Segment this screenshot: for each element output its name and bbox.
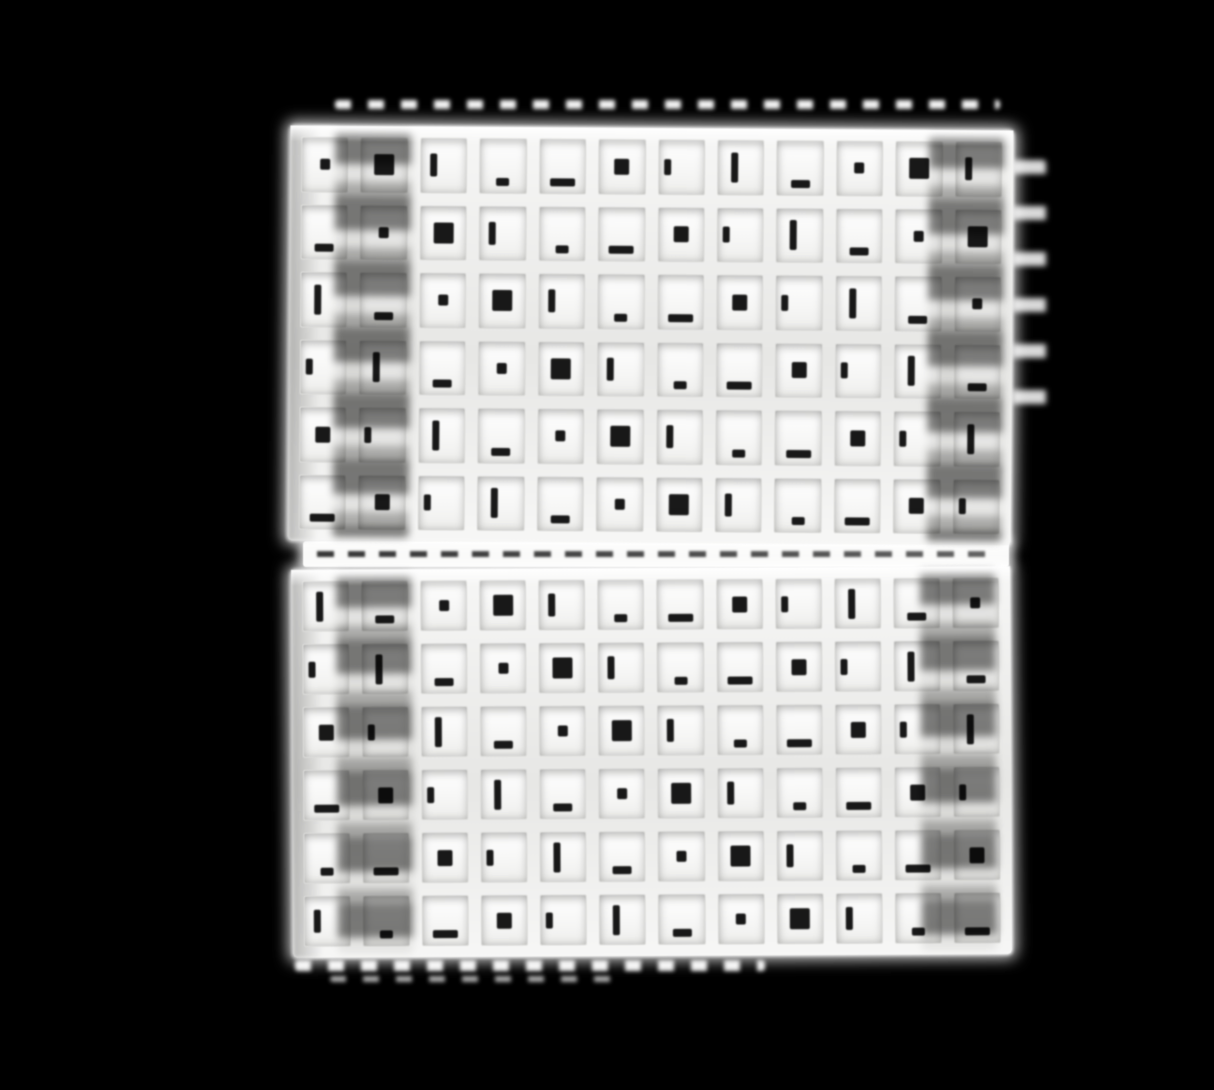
grid-cell bbox=[422, 832, 469, 883]
grid-cell bbox=[480, 706, 527, 757]
hole-shadow bbox=[664, 159, 671, 175]
hole-shadow bbox=[492, 447, 511, 455]
hole-shadow bbox=[494, 779, 501, 809]
grid-cell bbox=[361, 643, 408, 694]
grid-cell bbox=[893, 577, 940, 628]
grid-cell bbox=[304, 896, 351, 947]
hole-shadow bbox=[910, 784, 925, 800]
grid-cell bbox=[775, 704, 822, 755]
hole-shadow bbox=[433, 930, 458, 938]
grid-cell bbox=[657, 705, 704, 756]
grid-cell bbox=[716, 641, 763, 692]
hole-shadow bbox=[489, 222, 496, 245]
hole-shadow bbox=[732, 449, 745, 457]
grid-cell bbox=[657, 139, 705, 195]
hole-shadow bbox=[315, 426, 330, 442]
hole-shadow bbox=[840, 658, 847, 674]
grid-cell bbox=[418, 340, 466, 396]
grid-cell bbox=[539, 768, 586, 819]
hole-shadow bbox=[967, 714, 974, 744]
grid-cell bbox=[421, 706, 468, 757]
hole-shadow bbox=[965, 157, 972, 180]
hole-shadow bbox=[791, 517, 804, 525]
hole-shadow bbox=[845, 517, 870, 525]
grid-cell bbox=[420, 580, 467, 631]
hole-shadow bbox=[908, 315, 927, 323]
hole-shadow bbox=[674, 677, 687, 685]
grid-cell bbox=[835, 767, 882, 818]
hole-shadow bbox=[380, 930, 393, 938]
grid-cell bbox=[302, 581, 349, 632]
hole-shadow bbox=[613, 866, 632, 874]
grid-cell bbox=[359, 407, 407, 463]
grid-cell bbox=[658, 768, 705, 819]
grid-cell bbox=[599, 894, 646, 945]
hole-shadow bbox=[306, 359, 313, 375]
hole-shadow bbox=[375, 615, 394, 623]
grid-cell bbox=[480, 769, 527, 820]
grid-cell bbox=[775, 275, 823, 331]
grid-cell bbox=[539, 138, 587, 194]
hole-shadow bbox=[498, 663, 508, 674]
hole-shadow bbox=[608, 656, 615, 679]
hole-shadow bbox=[676, 851, 686, 862]
hole-shadow bbox=[427, 787, 434, 803]
edge-speckles-top bbox=[335, 100, 1000, 109]
hole-shadow bbox=[548, 290, 555, 313]
hole-shadow bbox=[732, 294, 747, 310]
hole-shadow bbox=[551, 358, 571, 379]
grid-cell bbox=[359, 272, 407, 328]
hole-shadow bbox=[673, 226, 688, 242]
hole-shadow bbox=[909, 498, 924, 514]
grid-cell bbox=[538, 273, 586, 329]
grid-cell bbox=[955, 141, 1003, 197]
hole-shadow bbox=[727, 676, 752, 684]
hole-shadow bbox=[548, 594, 555, 617]
hole-shadow bbox=[497, 912, 512, 928]
hole-shadow bbox=[900, 721, 907, 737]
hole-shadow bbox=[430, 154, 437, 177]
hole-shadow bbox=[781, 596, 788, 612]
hole-shadow bbox=[546, 912, 553, 928]
grid-cell bbox=[657, 207, 705, 263]
hole-shadow bbox=[378, 787, 393, 803]
hole-shadow bbox=[554, 803, 573, 811]
grid-cell bbox=[303, 833, 350, 884]
grid-cell bbox=[894, 829, 941, 880]
panel-gap-band bbox=[303, 541, 1009, 567]
grid-cell bbox=[657, 579, 704, 630]
grid-cell bbox=[954, 209, 1002, 265]
grid-cell bbox=[954, 276, 1002, 332]
grid-cell bbox=[363, 895, 410, 946]
edge-speckles-right bbox=[1012, 160, 1046, 420]
bottom-grid-panel bbox=[291, 566, 1012, 958]
grid-cell bbox=[540, 831, 587, 882]
hole-shadow bbox=[791, 179, 810, 187]
hole-shadow bbox=[610, 426, 630, 447]
hole-shadow bbox=[793, 802, 806, 810]
hole-shadow bbox=[851, 721, 866, 737]
grid-cell bbox=[717, 830, 764, 881]
hole-shadow bbox=[320, 159, 330, 170]
grid-cell bbox=[952, 640, 999, 691]
hole-shadow bbox=[852, 865, 865, 873]
grid-cell bbox=[952, 479, 1000, 535]
top-grid-panel bbox=[288, 125, 1014, 545]
hole-shadow bbox=[905, 865, 930, 873]
hole-shadow bbox=[914, 231, 924, 242]
grid-cell bbox=[716, 274, 764, 330]
hole-shadow bbox=[438, 295, 448, 306]
hole-shadow bbox=[968, 226, 988, 247]
grid-cell bbox=[539, 705, 586, 756]
hole-shadow bbox=[554, 842, 561, 872]
hole-shadow bbox=[374, 494, 389, 510]
grid-cell bbox=[836, 140, 884, 196]
grid-cell bbox=[479, 205, 527, 261]
grid-cell bbox=[539, 642, 586, 693]
hole-shadow bbox=[614, 313, 627, 321]
hole-shadow bbox=[959, 784, 966, 800]
hole-shadow bbox=[614, 158, 629, 174]
grid-cell bbox=[658, 894, 705, 945]
grid-cell bbox=[597, 274, 645, 330]
grid-cell bbox=[359, 339, 407, 395]
hole-shadow bbox=[667, 719, 674, 742]
grid-cell bbox=[598, 705, 645, 756]
hole-shadow bbox=[840, 363, 847, 379]
hole-shadow bbox=[672, 929, 691, 937]
grid-cell bbox=[893, 411, 941, 467]
grid-cell bbox=[479, 580, 526, 631]
hole-shadow bbox=[855, 163, 865, 174]
hole-shadow bbox=[845, 907, 852, 930]
grid-cell bbox=[360, 204, 408, 260]
grid-cell bbox=[835, 275, 883, 331]
hole-shadow bbox=[736, 914, 746, 925]
hole-shadow bbox=[965, 927, 990, 935]
grid-cell bbox=[538, 579, 585, 630]
grid-cell bbox=[598, 206, 646, 262]
grid-cell bbox=[774, 477, 822, 533]
edge-speckles-bottom-faint bbox=[330, 976, 620, 982]
hole-shadow bbox=[613, 905, 620, 935]
hole-shadow bbox=[971, 597, 981, 608]
hole-shadow bbox=[790, 908, 810, 929]
grid-cell bbox=[834, 410, 882, 466]
grid-cell bbox=[540, 894, 587, 945]
hole-shadow bbox=[319, 724, 334, 740]
hole-shadow bbox=[899, 430, 906, 446]
hole-shadow bbox=[374, 154, 394, 175]
grid-cell bbox=[303, 770, 350, 821]
hole-shadow bbox=[551, 515, 570, 523]
grid-cell bbox=[599, 831, 646, 882]
grid-cell bbox=[303, 707, 350, 758]
grid-cell bbox=[776, 140, 824, 196]
hole-shadow bbox=[432, 420, 439, 450]
hole-shadow bbox=[615, 499, 625, 510]
grid-cell bbox=[894, 766, 941, 817]
hole-shadow bbox=[849, 288, 856, 318]
hole-shadow bbox=[786, 449, 811, 457]
grid-cell bbox=[953, 344, 1001, 400]
hole-shadow bbox=[376, 654, 383, 684]
hole-shadow bbox=[732, 596, 747, 612]
hole-shadow bbox=[494, 741, 513, 749]
hole-shadow bbox=[433, 222, 453, 243]
hole-shadow bbox=[969, 847, 984, 863]
hole-shadow bbox=[786, 844, 793, 867]
grid-cell bbox=[477, 408, 525, 464]
grid-cell bbox=[895, 141, 943, 197]
hole-shadow bbox=[607, 357, 614, 380]
hole-shadow bbox=[365, 427, 372, 443]
grid-cell bbox=[776, 893, 823, 944]
grid-cell bbox=[776, 207, 824, 263]
grid-cell bbox=[776, 767, 823, 818]
hole-shadow bbox=[848, 588, 855, 618]
hole-shadow bbox=[668, 614, 693, 622]
hole-shadow bbox=[671, 783, 691, 804]
hole-shadow bbox=[731, 152, 738, 182]
grid-cell bbox=[598, 139, 646, 195]
grid-cell bbox=[717, 893, 764, 944]
grid-cell bbox=[953, 411, 1001, 467]
hole-shadow bbox=[314, 284, 321, 314]
hole-shadow bbox=[487, 849, 494, 865]
hole-shadow bbox=[493, 595, 513, 616]
hole-shadow bbox=[550, 178, 575, 186]
hole-shadow bbox=[314, 910, 321, 933]
hole-shadow bbox=[439, 600, 449, 611]
grid-cell bbox=[596, 476, 644, 532]
grid-cell bbox=[538, 206, 586, 262]
hole-shadow bbox=[782, 295, 789, 311]
hole-shadow bbox=[556, 431, 566, 442]
grid-cell bbox=[481, 895, 528, 946]
hole-shadow bbox=[424, 495, 431, 511]
grid-cell bbox=[301, 204, 349, 260]
grid-cell bbox=[658, 831, 705, 882]
grid-cell bbox=[417, 475, 465, 531]
hole-shadow bbox=[966, 675, 985, 683]
grid-cell bbox=[775, 342, 823, 398]
hole-shadow bbox=[379, 227, 389, 238]
hole-shadow bbox=[321, 868, 334, 876]
grid-cell bbox=[537, 341, 585, 397]
grid-cell bbox=[715, 342, 763, 398]
hole-shadow bbox=[609, 246, 634, 254]
hole-shadow bbox=[908, 356, 915, 386]
grid-cell bbox=[419, 205, 467, 261]
grid-cell bbox=[716, 578, 763, 629]
grid-cell bbox=[422, 895, 469, 946]
grid-cell bbox=[479, 138, 527, 194]
grid-cell bbox=[536, 476, 584, 532]
grid-cell bbox=[597, 341, 645, 397]
grid-cell bbox=[774, 410, 822, 466]
hole-shadow bbox=[850, 430, 865, 446]
hole-shadow bbox=[435, 717, 442, 747]
grid-cell bbox=[598, 642, 645, 693]
hole-shadow bbox=[617, 788, 627, 799]
hole-shadow bbox=[558, 725, 568, 736]
hole-shadow bbox=[308, 661, 315, 677]
hole-shadow bbox=[368, 724, 375, 740]
hole-shadow bbox=[725, 493, 732, 516]
hole-shadow bbox=[791, 659, 806, 675]
hole-shadow bbox=[666, 425, 673, 448]
grid-cell bbox=[655, 477, 703, 533]
edge-speckles-bottom bbox=[295, 960, 765, 971]
hole-shadow bbox=[850, 247, 869, 255]
grid-cell bbox=[716, 704, 763, 755]
hole-shadow bbox=[723, 227, 730, 243]
grid-cell bbox=[481, 832, 528, 883]
grid-cell bbox=[716, 207, 764, 263]
hole-shadow bbox=[791, 362, 806, 378]
grid-cell bbox=[834, 343, 882, 399]
hole-shadow bbox=[958, 498, 965, 514]
grid-cell bbox=[358, 474, 406, 530]
hole-shadow bbox=[310, 514, 335, 522]
grid-cell bbox=[952, 577, 999, 628]
grid-cell bbox=[299, 407, 347, 463]
grid-cell bbox=[421, 643, 468, 694]
grid-cell bbox=[418, 407, 466, 463]
grid-cell bbox=[776, 830, 823, 881]
grid-cell bbox=[362, 769, 409, 820]
hole-shadow bbox=[846, 802, 871, 810]
hole-shadow bbox=[315, 244, 334, 252]
photo-canvas bbox=[0, 0, 1214, 1090]
grid-cell bbox=[717, 139, 765, 195]
hole-shadow bbox=[731, 845, 751, 866]
hole-shadow bbox=[316, 591, 323, 621]
grid-cell bbox=[657, 274, 705, 330]
grid-cell bbox=[300, 272, 348, 328]
hole-shadow bbox=[491, 488, 498, 518]
grid-cell bbox=[478, 340, 526, 396]
grid-cell bbox=[715, 477, 763, 533]
grid-cell bbox=[953, 703, 1000, 754]
grid-cell bbox=[895, 208, 943, 264]
grid-cell bbox=[477, 475, 525, 531]
grid-cell bbox=[362, 832, 409, 883]
grid-cell bbox=[421, 769, 468, 820]
hole-shadow bbox=[374, 312, 393, 320]
grid-cell bbox=[420, 137, 468, 193]
grid-cell bbox=[835, 208, 883, 264]
hole-shadow bbox=[790, 220, 797, 250]
grid-cell bbox=[775, 578, 822, 629]
grid-cell bbox=[894, 276, 942, 332]
hole-shadow bbox=[438, 850, 453, 866]
hole-shadow bbox=[673, 381, 686, 389]
grid-cell bbox=[775, 641, 822, 692]
hole-shadow bbox=[612, 720, 632, 741]
hole-shadow bbox=[374, 867, 399, 875]
hole-shadow bbox=[314, 805, 339, 813]
grid-cell bbox=[894, 343, 942, 399]
grid-cell bbox=[953, 766, 1000, 817]
hole-shadow bbox=[555, 245, 568, 253]
grid-cell bbox=[596, 409, 644, 465]
hole-shadow bbox=[552, 657, 572, 678]
grid-cell bbox=[537, 408, 585, 464]
grid-cell bbox=[835, 830, 882, 881]
grid-cell bbox=[833, 478, 881, 534]
hole-shadow bbox=[733, 740, 746, 748]
hole-shadow bbox=[727, 782, 734, 805]
hole-shadow bbox=[727, 382, 752, 390]
grid-cell bbox=[478, 273, 526, 329]
grid-cell bbox=[419, 272, 467, 328]
grid-cell bbox=[953, 829, 1000, 880]
grid-cell bbox=[362, 706, 409, 757]
grid-cell bbox=[835, 893, 882, 944]
hole-shadow bbox=[787, 739, 812, 747]
grid-cell bbox=[656, 409, 704, 465]
hole-shadow bbox=[668, 314, 693, 322]
hole-shadow bbox=[912, 928, 925, 936]
grid-cell bbox=[301, 137, 349, 193]
hole-shadow bbox=[433, 379, 452, 387]
hole-shadow bbox=[907, 651, 914, 681]
grid-cell bbox=[893, 478, 941, 534]
grid-cell bbox=[893, 640, 940, 691]
grid-cell bbox=[300, 339, 348, 395]
grid-cell bbox=[480, 643, 527, 694]
grid-cell bbox=[360, 137, 408, 193]
grid-cell bbox=[361, 580, 408, 631]
hole-shadow bbox=[492, 290, 512, 311]
grid-cell bbox=[299, 474, 347, 530]
grid-cell bbox=[656, 342, 704, 398]
hole-shadow bbox=[967, 424, 974, 454]
hole-shadow bbox=[373, 352, 380, 382]
hole-shadow bbox=[669, 494, 689, 515]
grid-cell bbox=[834, 641, 881, 692]
grid-cell bbox=[302, 644, 349, 695]
hole-shadow bbox=[496, 177, 509, 185]
hole-shadow bbox=[972, 298, 982, 309]
hole-shadow bbox=[909, 158, 929, 179]
hole-shadow bbox=[967, 383, 986, 391]
grid-cell bbox=[895, 892, 942, 943]
grid-cell bbox=[954, 892, 1001, 943]
hole-shadow bbox=[497, 363, 507, 374]
hole-shadow bbox=[435, 678, 454, 686]
grid-cell bbox=[894, 703, 941, 754]
grid-cell bbox=[834, 704, 881, 755]
hole-shadow bbox=[907, 613, 926, 621]
hole-shadow bbox=[615, 614, 628, 622]
grid-cell bbox=[834, 578, 881, 629]
grid-cell bbox=[597, 579, 644, 630]
grid-cell bbox=[657, 642, 704, 693]
grid-cell bbox=[598, 768, 645, 819]
grid-cell bbox=[715, 409, 763, 465]
grid-cell bbox=[717, 767, 764, 818]
